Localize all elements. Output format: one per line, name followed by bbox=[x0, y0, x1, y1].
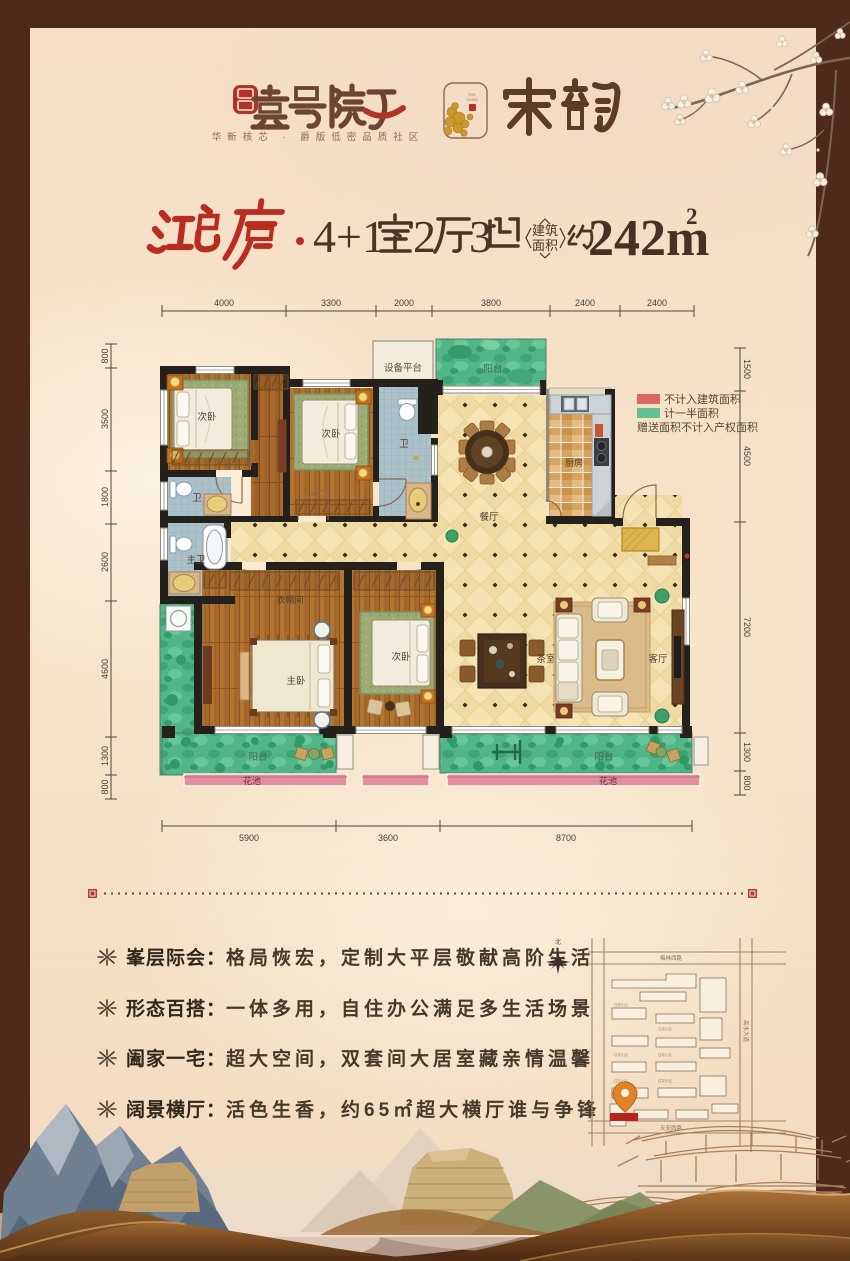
svg-text:住宅小区: 住宅小区 bbox=[658, 1026, 672, 1031]
svg-text:面积: 面积 bbox=[532, 238, 558, 253]
svg-text:1300: 1300 bbox=[742, 742, 752, 762]
svg-text:3800: 3800 bbox=[481, 298, 501, 308]
svg-text:5900: 5900 bbox=[239, 833, 259, 843]
svg-text:茶室: 茶室 bbox=[536, 653, 555, 665]
svg-text:SONG: SONG bbox=[466, 97, 478, 102]
svg-text:次卧: 次卧 bbox=[197, 411, 217, 423]
svg-text:2400: 2400 bbox=[647, 298, 667, 308]
svg-text:2000: 2000 bbox=[394, 298, 414, 308]
svg-text:餐厅: 餐厅 bbox=[479, 511, 499, 523]
svg-text:7200: 7200 bbox=[742, 617, 752, 637]
svg-text:3500: 3500 bbox=[100, 409, 110, 429]
svg-text:2400: 2400 bbox=[575, 298, 595, 308]
svg-text:客厅: 客厅 bbox=[648, 653, 668, 665]
svg-text:4+1: 4+1 bbox=[313, 211, 385, 262]
svg-text:800: 800 bbox=[100, 348, 110, 363]
svg-text:厨房: 厨房 bbox=[565, 457, 583, 468]
svg-text:3300: 3300 bbox=[321, 298, 341, 308]
svg-text:梅林西路: 梅林西路 bbox=[660, 954, 683, 962]
svg-text:住宅小区: 住宅小区 bbox=[614, 1052, 628, 1057]
svg-text:赠送面积不计入产权面积: 赠送面积不计入产权面积 bbox=[637, 420, 758, 434]
svg-text:住宅小区: 住宅小区 bbox=[614, 1002, 628, 1007]
svg-text:住宅小区: 住宅小区 bbox=[658, 1052, 672, 1057]
svg-text:800: 800 bbox=[742, 775, 752, 790]
svg-text:4500: 4500 bbox=[742, 446, 752, 466]
svg-text:3600: 3600 bbox=[378, 833, 398, 843]
svg-text:次卧: 次卧 bbox=[321, 428, 341, 440]
svg-text:北: 北 bbox=[555, 938, 561, 946]
svg-text:主卧: 主卧 bbox=[286, 675, 306, 687]
svg-text:衣帽间: 衣帽间 bbox=[276, 594, 303, 605]
svg-text:华新核芯 · 爵版低密品质社区: 华新核芯 · 爵版低密品质社区 bbox=[212, 131, 424, 143]
svg-text:次卧: 次卧 bbox=[391, 651, 411, 663]
svg-text:800: 800 bbox=[100, 779, 110, 794]
svg-text:4000: 4000 bbox=[214, 298, 234, 308]
svg-text:花池: 花池 bbox=[599, 775, 617, 786]
svg-text:1500: 1500 bbox=[742, 359, 752, 379]
svg-text:高水大道: 高水大道 bbox=[742, 1020, 750, 1043]
svg-text:阳台: 阳台 bbox=[248, 751, 267, 763]
svg-text:卫: 卫 bbox=[399, 439, 409, 450]
svg-text:2600: 2600 bbox=[100, 552, 110, 572]
svg-text:计一半面积: 计一半面积 bbox=[664, 406, 719, 420]
svg-text:阳台: 阳台 bbox=[483, 363, 502, 375]
svg-text:4600: 4600 bbox=[100, 659, 110, 679]
svg-text:1300: 1300 bbox=[100, 746, 110, 766]
svg-text:阳台: 阳台 bbox=[594, 751, 613, 763]
svg-text:1800: 1800 bbox=[100, 487, 110, 507]
svg-text:卫: 卫 bbox=[192, 493, 202, 504]
svg-text:2: 2 bbox=[413, 211, 436, 262]
svg-text:设备平台: 设备平台 bbox=[384, 362, 422, 374]
svg-text:花池: 花池 bbox=[243, 775, 261, 786]
svg-text:建筑: 建筑 bbox=[532, 223, 558, 238]
svg-text:不计入建筑面积: 不计入建筑面积 bbox=[664, 392, 741, 406]
svg-text:主卫: 主卫 bbox=[186, 554, 206, 566]
svg-text:8700: 8700 bbox=[556, 833, 576, 843]
